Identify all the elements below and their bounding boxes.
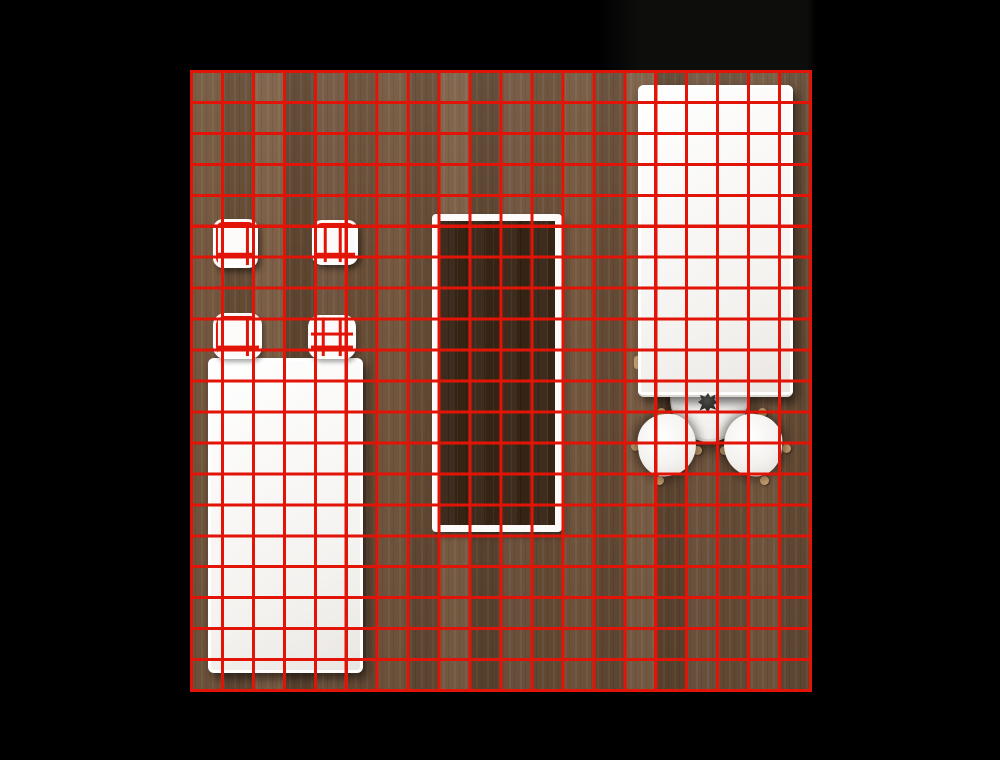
bed-pillow-right bbox=[308, 315, 356, 359]
chair-right[interactable] bbox=[716, 406, 790, 486]
chair-foot bbox=[760, 476, 769, 485]
chair-seat bbox=[721, 411, 785, 479]
stool-left[interactable] bbox=[213, 219, 258, 268]
planner-canvas bbox=[0, 0, 1000, 760]
room-floor bbox=[190, 70, 812, 692]
bed-mattress bbox=[208, 358, 363, 673]
chair-left[interactable] bbox=[631, 406, 705, 486]
stool-right[interactable] bbox=[312, 220, 358, 265]
chair-seat bbox=[635, 411, 699, 479]
bed-pillow-left bbox=[213, 313, 262, 359]
long-table[interactable] bbox=[638, 85, 793, 397]
wall-shadow bbox=[598, 0, 816, 71]
rug[interactable] bbox=[432, 214, 562, 532]
bed[interactable] bbox=[208, 313, 363, 673]
chair-foot bbox=[782, 444, 791, 453]
chair-foot bbox=[655, 476, 664, 485]
